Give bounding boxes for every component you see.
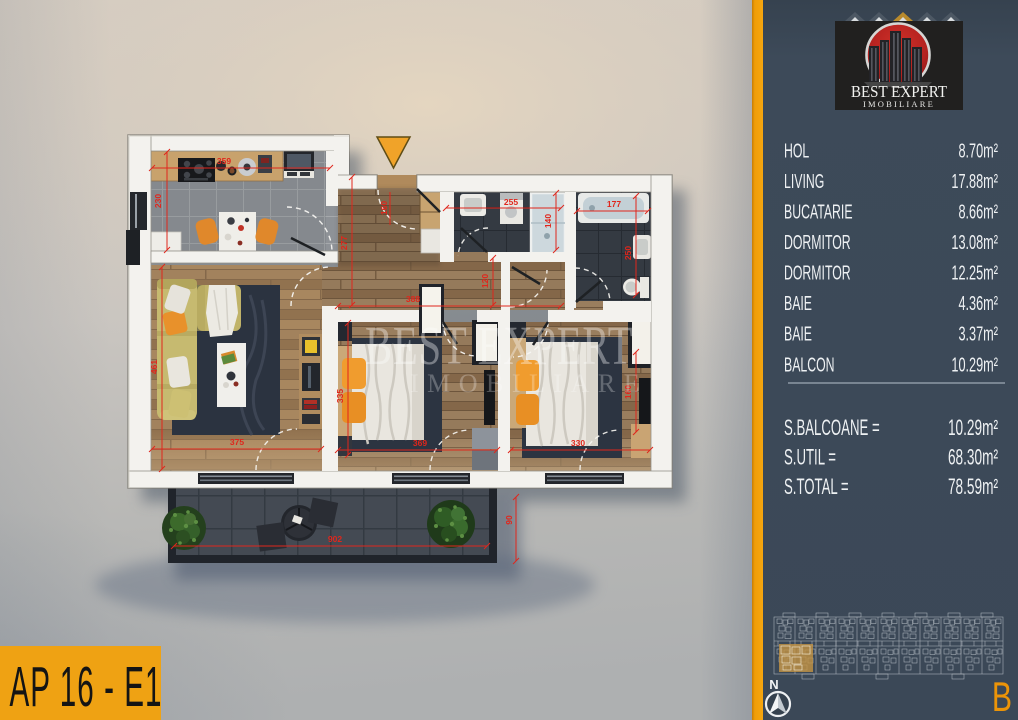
svg-text:BEST EXPERT: BEST EXPERT: [365, 316, 633, 376]
svg-text:10.29m²: 10.29m²: [951, 353, 998, 376]
svg-text:DORMITOR: DORMITOR: [784, 231, 851, 254]
svg-text:120: 120: [480, 274, 490, 288]
svg-text:335: 335: [335, 389, 345, 403]
svg-text:17.88m²: 17.88m²: [951, 170, 998, 193]
svg-text:HOL: HOL: [784, 139, 809, 162]
svg-text:IMOBILIARE: IMOBILIARE: [410, 369, 648, 398]
svg-text:388: 388: [406, 294, 420, 304]
svg-text:78.59m²: 78.59m²: [948, 474, 998, 499]
svg-text:BAIE: BAIE: [784, 292, 812, 315]
svg-text:S.UTIL =: S.UTIL =: [784, 445, 836, 469]
svg-text:230: 230: [153, 194, 163, 208]
svg-text:S.TOTAL =: S.TOTAL =: [784, 475, 849, 499]
svg-text:68.30m²: 68.30m²: [948, 444, 998, 469]
svg-text:375: 375: [230, 437, 244, 447]
svg-text:330: 330: [571, 438, 585, 448]
svg-text:12.25m²: 12.25m²: [951, 262, 998, 285]
svg-text:177: 177: [607, 199, 621, 209]
svg-text:3.37m²: 3.37m²: [958, 323, 998, 346]
svg-text:359: 359: [217, 156, 231, 166]
svg-text:461: 461: [149, 360, 159, 374]
svg-text:277: 277: [339, 236, 349, 250]
svg-text:8.70m²: 8.70m²: [958, 139, 998, 162]
svg-text:BALCON: BALCON: [784, 353, 835, 376]
svg-text:AP 16 - E1: AP 16 - E1: [9, 655, 162, 719]
svg-text:369: 369: [413, 438, 427, 448]
svg-text:B: B: [992, 673, 1012, 720]
svg-text:90: 90: [504, 515, 514, 525]
svg-text:DORMITOR: DORMITOR: [784, 261, 851, 284]
svg-text:10.29m²: 10.29m²: [948, 415, 998, 440]
svg-text:250: 250: [623, 246, 633, 260]
svg-text:4.36m²: 4.36m²: [958, 292, 998, 315]
svg-text:140: 140: [543, 214, 553, 228]
svg-text:S.BALCOANE =: S.BALCOANE =: [784, 416, 880, 440]
svg-text:BUCATARIE: BUCATARIE: [784, 200, 853, 223]
svg-text:BAIE: BAIE: [784, 323, 812, 346]
svg-text:8.66m²: 8.66m²: [958, 200, 998, 223]
svg-text:13.08m²: 13.08m²: [951, 231, 998, 254]
svg-text:LIVING: LIVING: [784, 170, 824, 193]
svg-text:N: N: [769, 677, 778, 692]
svg-text:IMOBILIARE: IMOBILIARE: [863, 99, 935, 109]
svg-text:902: 902: [328, 534, 342, 544]
svg-text:255: 255: [504, 197, 518, 207]
svg-text:160: 160: [379, 201, 389, 215]
